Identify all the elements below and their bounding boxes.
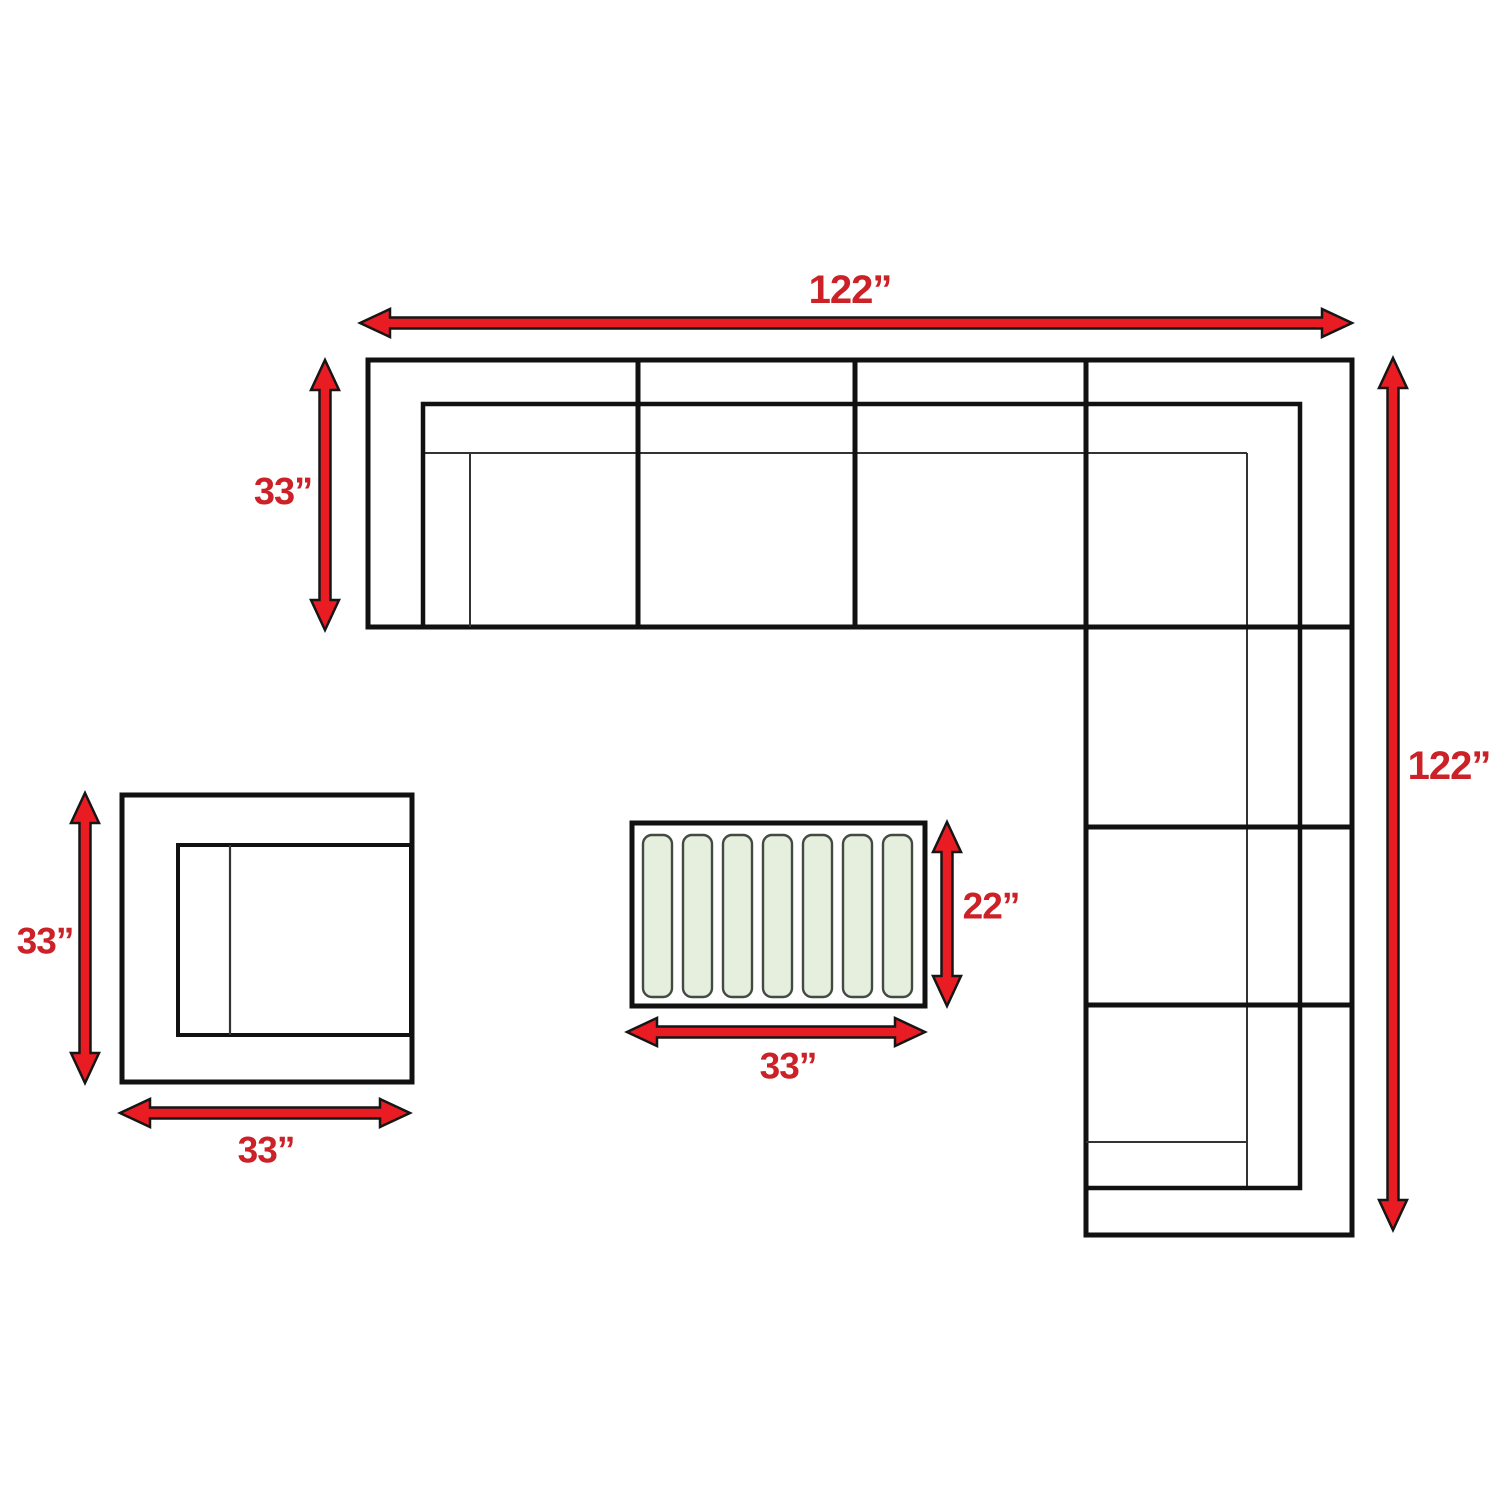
dimension-label-chair-width: 33” [238, 1132, 295, 1169]
table-slat-1 [683, 835, 712, 997]
furniture-dimension-diagram: 122” 33” 122” 33” 33” 22” 33” [0, 0, 1500, 1500]
table-slat-4 [803, 835, 832, 997]
dimension-label-chair-depth: 33” [17, 923, 74, 960]
table-slat-6 [883, 835, 912, 997]
table-slat-0 [643, 835, 672, 997]
dimension-label-sofa-width: 122” [809, 270, 892, 310]
table-slat-3 [763, 835, 792, 997]
table-slat-5 [843, 835, 872, 997]
armchair-plan [122, 795, 412, 1082]
dimension-label-sofa-length: 122” [1408, 746, 1491, 786]
dimension-label-table-width: 33” [760, 1048, 817, 1085]
dimension-label-table-depth: 22” [963, 888, 1020, 925]
diagram-svg [0, 0, 1500, 1500]
dimension-label-sofa-depth: 33” [254, 473, 312, 511]
table-slat-2 [723, 835, 752, 997]
